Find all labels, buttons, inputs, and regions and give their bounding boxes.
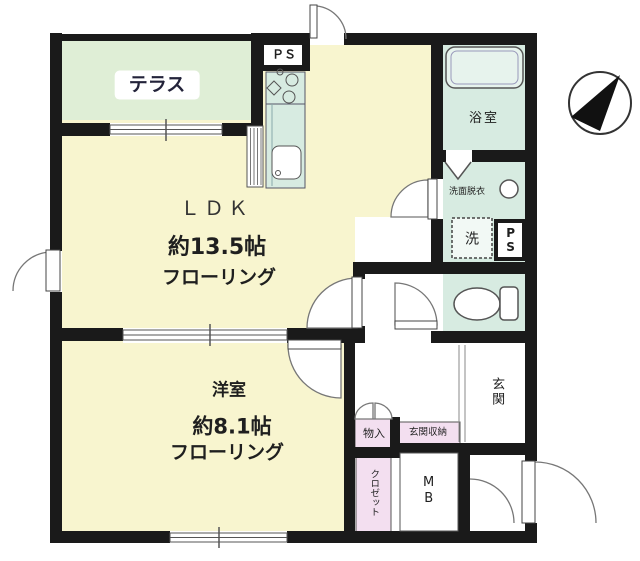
- storage-door-right-arc: [375, 403, 392, 419]
- closet-label: クロゼット: [368, 469, 378, 517]
- western-room-door-leaf: [288, 340, 341, 349]
- kitchen-sink-icon: [272, 146, 301, 179]
- washroom-door-leaf: [428, 179, 437, 219]
- pipe-space-top-label: ＰＳ: [272, 48, 296, 61]
- toilet-door-arc: [395, 283, 437, 325]
- toilet-door-leaf: [395, 321, 437, 329]
- front-door-outer-arc: [535, 462, 596, 523]
- floor-plan: テラス ＰＳ ＬＤＫ 約13.5帖 フローリング 洋室 約8.1帖 フローリング…: [0, 0, 640, 561]
- terrace-label: テラス: [115, 71, 200, 100]
- kitchen-counter: [266, 69, 305, 188]
- ldk-size-label: 約13.5帖: [168, 236, 266, 260]
- north-compass-icon: [569, 72, 631, 134]
- washing-machine-label: 洗: [465, 232, 479, 247]
- refrigerator-space-icon: [247, 126, 263, 187]
- western-room-floor-label: フローリング: [170, 443, 284, 464]
- western-room-label: 洋室: [212, 382, 246, 401]
- front-door-inner-arc: [470, 479, 514, 523]
- meter-box-label: MB: [421, 475, 435, 507]
- top-service-door-leaf: [310, 5, 317, 38]
- ldk-label: ＬＤＫ: [180, 197, 252, 219]
- left-service-door-leaf: [46, 250, 60, 291]
- entrance-label: 玄関: [489, 377, 503, 407]
- bathtub-icon: [446, 47, 523, 88]
- washroom-label: 洗面脱衣: [449, 188, 485, 198]
- washbasin-icon: [500, 180, 518, 198]
- ldk-floor-label: フローリング: [162, 268, 276, 289]
- pipe-space-side-label: PS: [503, 226, 516, 254]
- entrance-storage-label: 玄関収納: [409, 428, 447, 438]
- storage-door-left-arc: [355, 403, 373, 419]
- floor-plan-drawing: [0, 0, 640, 561]
- bath-label: 浴室: [469, 112, 499, 126]
- front-door-leaf: [522, 461, 535, 523]
- storage-label: 物入: [363, 428, 385, 440]
- left-service-door-arc: [13, 252, 50, 291]
- ldk-hall-door-leaf: [352, 277, 362, 328]
- western-room-size-label: 約8.1帖: [192, 415, 271, 438]
- toilet-icon: [454, 287, 518, 320]
